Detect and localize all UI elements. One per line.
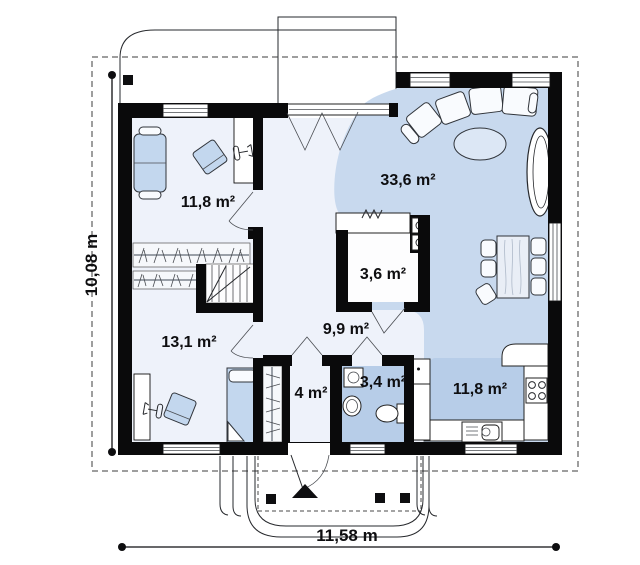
floor-plan-page: 11,8 m² 33,6 m² 3,6 m² 9,9 m² 13,1 m² 4 … bbox=[0, 0, 640, 565]
label-entry-hall: 4 m² bbox=[295, 385, 328, 402]
window-bedroom2-bottom bbox=[163, 444, 220, 454]
label-living-room: 33,6 m² bbox=[380, 172, 435, 189]
porch-column bbox=[375, 493, 385, 503]
window-kitchen-bottom bbox=[465, 444, 517, 454]
window-living-1 bbox=[410, 73, 450, 87]
dining-table bbox=[497, 236, 529, 298]
chair bbox=[531, 278, 546, 295]
porch-column bbox=[400, 493, 410, 503]
window-living-2 bbox=[512, 73, 550, 87]
wardrobe-lower bbox=[133, 271, 198, 289]
counter-rounded bbox=[502, 344, 548, 366]
cooktop bbox=[526, 378, 547, 403]
staircase bbox=[196, 264, 263, 313]
toilet bbox=[376, 404, 405, 423]
pillow bbox=[229, 370, 256, 382]
floor-plan-canvas: 11,8 m² 33,6 m² 3,6 m² 9,9 m² 13,1 m² 4 … bbox=[0, 0, 640, 565]
label-pantry: 3,6 m² bbox=[360, 266, 406, 283]
dining-set bbox=[474, 236, 546, 306]
chair bbox=[531, 258, 546, 275]
label-height-dimension: 10,08 m bbox=[82, 234, 101, 296]
entry-wardrobe bbox=[263, 366, 282, 442]
label-kitchen: 11,8 m² bbox=[453, 381, 507, 398]
chimney-marker bbox=[123, 75, 133, 85]
label-bathroom: 3,4 m² bbox=[360, 374, 406, 391]
desk bbox=[234, 117, 256, 183]
wall-left bbox=[118, 103, 132, 455]
coffee-table bbox=[454, 128, 506, 160]
desk bbox=[134, 374, 150, 440]
porch-column bbox=[266, 494, 276, 504]
chair bbox=[481, 240, 496, 257]
sofa bbox=[134, 127, 166, 199]
window-bedroom1-top bbox=[163, 104, 208, 117]
window-bathroom-bottom bbox=[350, 444, 385, 454]
window-right-wall bbox=[549, 223, 561, 301]
washbasin bbox=[343, 396, 361, 416]
label-bedroom-lower-left: 13,1 m² bbox=[161, 334, 216, 351]
label-bedroom-upper-left: 11,8 m² bbox=[181, 194, 235, 211]
chair bbox=[531, 238, 546, 255]
wardrobe-upper bbox=[133, 243, 250, 267]
label-width-dimension: 11,58 m bbox=[316, 526, 377, 545]
chair bbox=[481, 260, 496, 277]
label-hallway: 9,9 m² bbox=[323, 321, 369, 338]
